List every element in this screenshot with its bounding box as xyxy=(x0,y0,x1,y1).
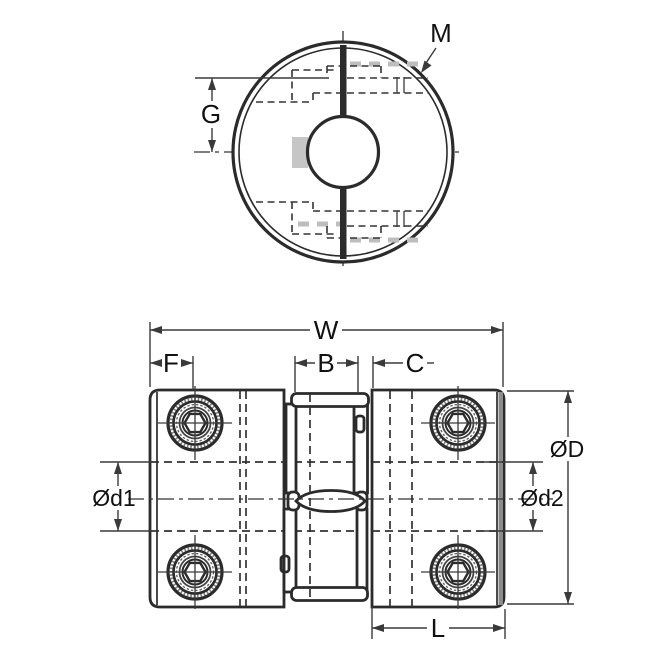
callout-label-m: M xyxy=(430,18,452,48)
left-jaw-wall-lower xyxy=(284,509,296,592)
bore-circle xyxy=(308,117,379,188)
dim-label-l: L xyxy=(431,613,445,643)
dimension-od1: Ød1 xyxy=(92,462,151,531)
coupling-drawing: G M xyxy=(0,0,670,670)
dim-label-w: W xyxy=(314,315,339,345)
dim-label-od2: Ød2 xyxy=(520,485,563,511)
dim-label-f: F xyxy=(163,348,179,378)
clamp-slit-bottom xyxy=(340,188,347,260)
keyway-shading xyxy=(292,137,308,168)
callout-m: M xyxy=(421,18,452,73)
dim-label-c: C xyxy=(406,348,425,378)
dim-label-od1: Ød1 xyxy=(92,485,135,511)
dim-label-g: G xyxy=(201,99,221,129)
dimension-l: L xyxy=(372,606,505,643)
dimension-b: B xyxy=(295,348,358,392)
jaw-bottom-bar xyxy=(292,588,368,601)
right-jaw-wall-lower xyxy=(357,509,367,592)
left-jaw-wall-upper xyxy=(286,404,296,493)
clamp-slit-top xyxy=(340,45,347,117)
dim-label-b: B xyxy=(317,348,334,378)
dimension-f: F xyxy=(150,348,193,390)
jaw-top-bar xyxy=(292,394,369,407)
front-view: G M xyxy=(194,18,463,271)
spider-lens xyxy=(296,491,365,512)
spider-section xyxy=(281,394,369,601)
dim-label-od: ØD xyxy=(550,436,585,462)
dimension-c: C xyxy=(373,348,434,388)
drawing-canvas: G M xyxy=(0,0,670,670)
side-view: W F B C xyxy=(92,315,584,643)
